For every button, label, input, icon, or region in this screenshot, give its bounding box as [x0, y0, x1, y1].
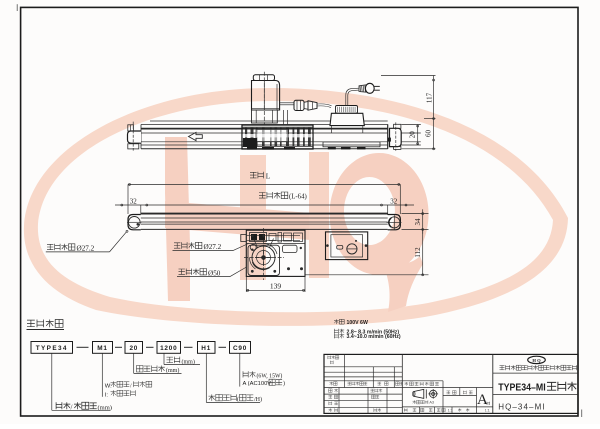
svg-text:(mm): (mm): [98, 404, 112, 411]
svg-text:1:1: 1:1: [448, 409, 453, 413]
svg-text:C90: C90: [233, 345, 247, 352]
svg-text:20: 20: [408, 131, 416, 139]
svg-text:32: 32: [130, 197, 138, 205]
svg-text:I:: I:: [105, 392, 109, 398]
svg-text:Ø27.2: Ø27.2: [204, 243, 222, 251]
svg-text:139: 139: [270, 282, 282, 291]
svg-text:Ø50: Ø50: [208, 269, 221, 277]
svg-text:TYPE34: TYPE34: [36, 345, 68, 352]
svg-text:TYPE34–MI: TYPE34–MI: [498, 383, 546, 394]
svg-text:): ): [283, 380, 285, 387]
svg-text:100V 6W: 100V 6W: [347, 320, 368, 326]
svg-text:1200: 1200: [160, 345, 177, 352]
svg-text:3.4~10.0 m/min (60Hz): 3.4~10.0 m/min (60Hz): [347, 334, 401, 340]
svg-text:Ø27.2: Ø27.2: [77, 245, 95, 253]
svg-text:A3: A3: [429, 401, 434, 405]
svg-text:20: 20: [129, 345, 138, 352]
svg-text:A (AC100V: A (AC100V: [243, 381, 272, 387]
svg-text:112: 112: [414, 247, 422, 258]
svg-text:HQ–34–MI: HQ–34–MI: [498, 402, 545, 411]
svg-text:(: (: [237, 396, 239, 403]
svg-text:L: L: [266, 172, 270, 180]
svg-text:(mm): (mm): [166, 367, 179, 374]
svg-text:/H): /H): [254, 396, 262, 403]
svg-text:A: A: [477, 392, 488, 408]
svg-text:60: 60: [424, 130, 432, 138]
svg-text:H Q: H Q: [532, 358, 541, 363]
svg-text:/: /: [71, 403, 73, 411]
svg-text:M1: M1: [97, 345, 107, 352]
svg-text:(6W, 15W): (6W, 15W): [257, 373, 283, 380]
svg-text:(L-64): (L-64): [289, 194, 307, 201]
svg-text:34: 34: [414, 218, 422, 226]
svg-text:1:1: 1:1: [485, 409, 490, 413]
svg-text:(mm): (mm): [182, 358, 195, 365]
svg-text:32: 32: [390, 197, 398, 205]
svg-text:117: 117: [426, 92, 434, 103]
svg-text:H1: H1: [201, 345, 211, 352]
svg-text:W:: W:: [105, 383, 112, 389]
